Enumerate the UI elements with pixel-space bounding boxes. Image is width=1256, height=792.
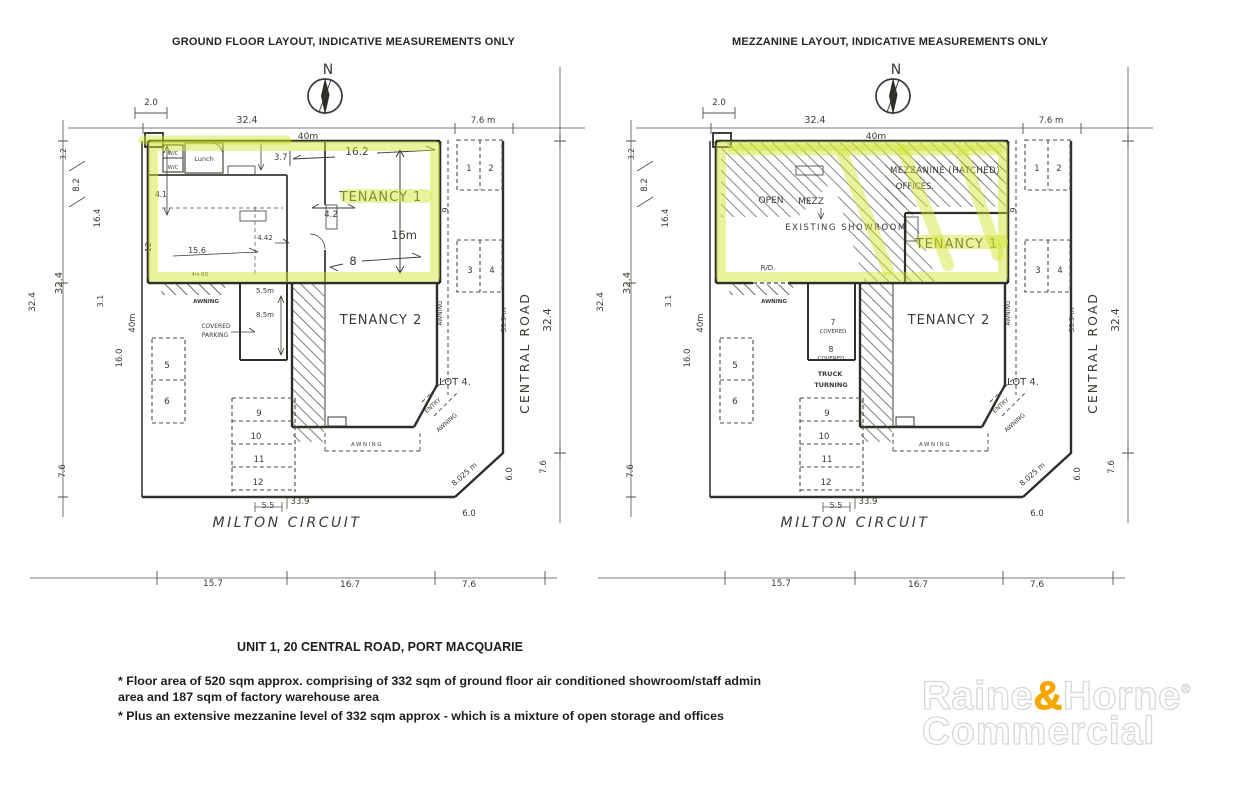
raine-horne-logo: Raine&Horne® Commercial bbox=[922, 676, 1191, 751]
covered-bay-label: 7 bbox=[831, 318, 836, 327]
ground-floor-plan: W/C W/C Lunch 4m RD 3.7 16.2 4.1 12 15.6… bbox=[25, 55, 625, 600]
covered-parking-label: COVERED bbox=[201, 323, 231, 330]
mezzanine-heading: MEZZANINE LAYOUT, INDICATIVE MEASUREMENT… bbox=[732, 36, 1048, 48]
covered-parking-label: PARKING bbox=[202, 332, 229, 339]
page-title: UNIT 1, 20 CENTRAL ROAD, PORT MACQUARIE bbox=[120, 640, 640, 654]
open-mezz-label: OPEN bbox=[759, 196, 784, 206]
dim-label: 8 bbox=[349, 254, 356, 268]
bullet-line: * Floor area of 520 sqm approx. comprisi… bbox=[118, 674, 780, 706]
dim-label: 4.2 bbox=[324, 210, 338, 220]
arrow-icon bbox=[818, 208, 824, 219]
truck-turning-label: TRUCK bbox=[818, 370, 843, 378]
covered-bay-label: COVERED bbox=[820, 329, 847, 335]
room-label: Lunch bbox=[194, 155, 213, 163]
open-mezz-label: MEZZ bbox=[798, 197, 824, 207]
property-description: * Floor area of 520 sqm approx. comprisi… bbox=[118, 674, 780, 728]
truck-turning-label: TURNING bbox=[814, 381, 847, 389]
rd-label: R/D. bbox=[761, 264, 776, 272]
dim-label: 8.5m bbox=[256, 311, 274, 319]
door-arc-icon bbox=[310, 234, 325, 249]
dim-label: 5.5m bbox=[256, 287, 274, 295]
dim-label: 4.42 bbox=[257, 234, 273, 242]
arrow-icon bbox=[231, 328, 255, 332]
dim-label: 15.6 bbox=[188, 246, 206, 255]
bullet-line: * Plus an extensive mezzanine level of 3… bbox=[118, 709, 780, 725]
covered-bay-label: COVERED bbox=[818, 356, 845, 362]
ground-interior bbox=[148, 141, 337, 283]
logo-line2: Commercial bbox=[922, 712, 1191, 751]
covered-bay-label: 8 bbox=[829, 345, 834, 354]
dim-label: 16m bbox=[391, 228, 417, 242]
stairs-icon bbox=[240, 211, 266, 221]
existing-showroom-label: EXISTING SHOWROOM bbox=[785, 223, 906, 233]
mezzanine-plan: OPEN MEZZ MEZZANINE (HATCHED) OFFICES. E… bbox=[593, 55, 1193, 600]
dim-label: 3.7 bbox=[274, 153, 288, 163]
tenancy2-label: TENANCY 2 bbox=[907, 313, 991, 328]
stairs-icon bbox=[228, 166, 255, 175]
highlight-marks bbox=[143, 140, 435, 277]
tenancy2-label: TENANCY 2 bbox=[339, 313, 423, 328]
room-label: W/C bbox=[168, 165, 179, 171]
ground-floor-heading: GROUND FLOOR LAYOUT, INDICATIVE MEASUREM… bbox=[172, 36, 515, 48]
registered-mark: ® bbox=[1181, 681, 1191, 696]
